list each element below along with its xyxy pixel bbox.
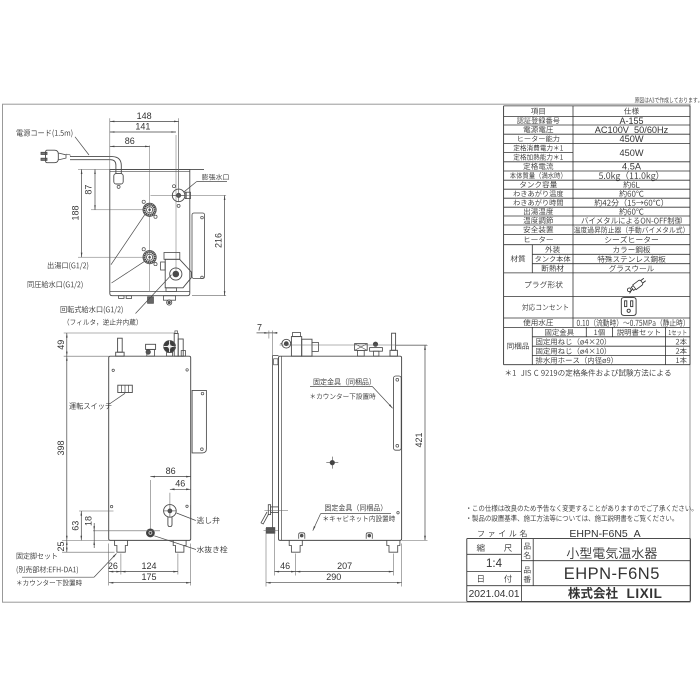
svg-text:18: 18 bbox=[83, 516, 93, 526]
svg-text:450W: 450W bbox=[619, 134, 643, 144]
svg-text:124: 124 bbox=[141, 561, 156, 571]
svg-text:450W: 450W bbox=[619, 148, 643, 158]
svg-text:1:4: 1:4 bbox=[486, 558, 503, 570]
svg-text:188: 188 bbox=[71, 205, 81, 220]
svg-text:46: 46 bbox=[280, 561, 290, 571]
svg-text:26: 26 bbox=[108, 561, 118, 571]
svg-text:7: 7 bbox=[257, 323, 262, 333]
svg-text:EHPN-F6N5: EHPN-F6N5 bbox=[564, 565, 660, 583]
svg-text:175: 175 bbox=[141, 572, 156, 582]
svg-text:2021.04.01: 2021.04.01 bbox=[469, 589, 520, 600]
svg-text:49: 49 bbox=[56, 340, 66, 350]
svg-text:216: 216 bbox=[214, 233, 224, 248]
svg-text:148: 148 bbox=[137, 111, 152, 121]
svg-text:46: 46 bbox=[175, 479, 185, 489]
svg-text:141: 141 bbox=[135, 121, 150, 131]
svg-text:4.5A: 4.5A bbox=[622, 162, 642, 172]
svg-text:421: 421 bbox=[414, 432, 424, 447]
svg-text:398: 398 bbox=[56, 440, 66, 455]
svg-text:86: 86 bbox=[125, 136, 135, 146]
svg-text:EHPN-F6N5_A: EHPN-F6N5_A bbox=[569, 528, 640, 540]
svg-text:86: 86 bbox=[166, 466, 176, 476]
svg-text:87: 87 bbox=[84, 185, 94, 195]
svg-text:290: 290 bbox=[326, 572, 341, 582]
svg-text:LIXIL: LIXIL bbox=[627, 586, 663, 601]
svg-text:63: 63 bbox=[70, 521, 80, 531]
svg-text:207: 207 bbox=[337, 561, 352, 571]
svg-text:25: 25 bbox=[56, 541, 66, 551]
